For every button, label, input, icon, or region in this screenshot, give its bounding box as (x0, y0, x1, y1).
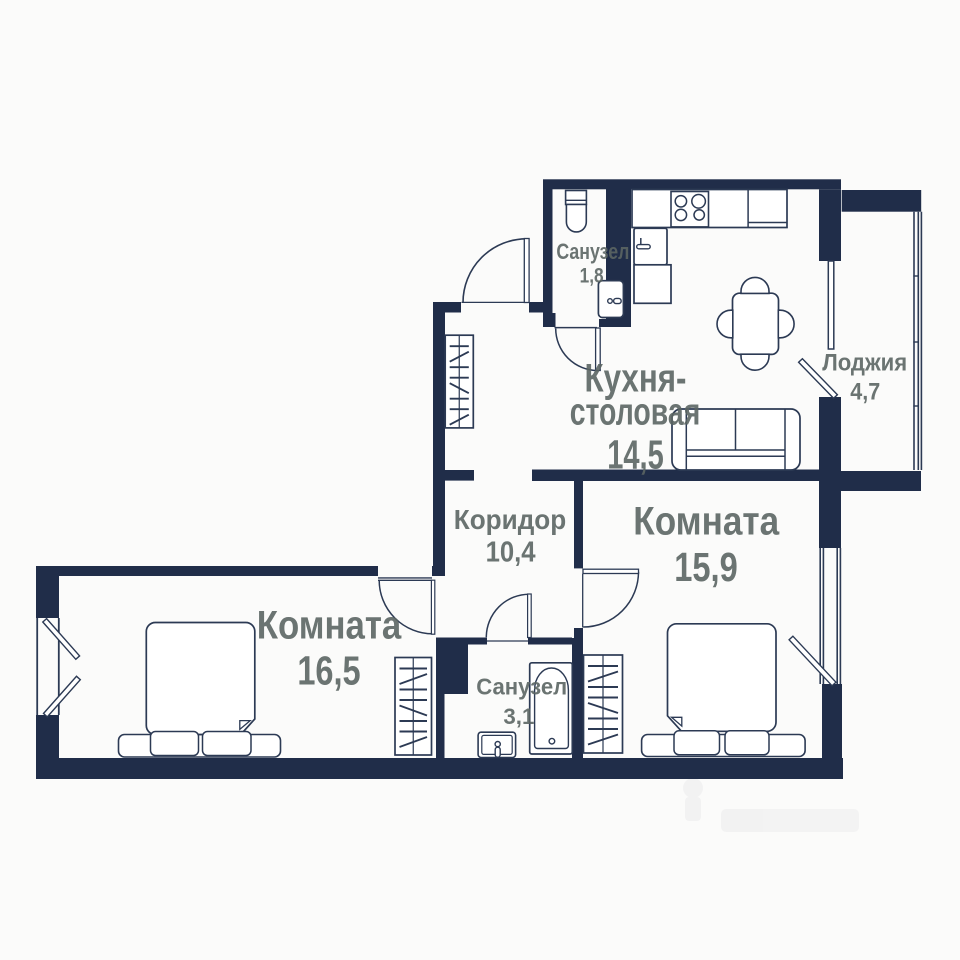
svg-text:14,5: 14,5 (607, 432, 664, 478)
svg-text:16,5: 16,5 (297, 647, 360, 693)
svg-text:Комната: Комната (633, 500, 780, 544)
svg-text:Лоджия: Лоджия (822, 350, 907, 377)
svg-text:Коридор: Коридор (454, 504, 567, 535)
svg-text:Санузел: Санузел (556, 239, 629, 264)
svg-text:4,7: 4,7 (850, 378, 880, 405)
svg-text:1,8: 1,8 (580, 264, 604, 287)
svg-text:3,1: 3,1 (503, 704, 534, 729)
svg-text:столовая: столовая (570, 391, 701, 433)
svg-text:Комната: Комната (257, 604, 402, 648)
svg-text:Санузел: Санузел (476, 674, 567, 700)
svg-text:10,4: 10,4 (486, 537, 536, 569)
svg-text:15,9: 15,9 (674, 544, 738, 590)
